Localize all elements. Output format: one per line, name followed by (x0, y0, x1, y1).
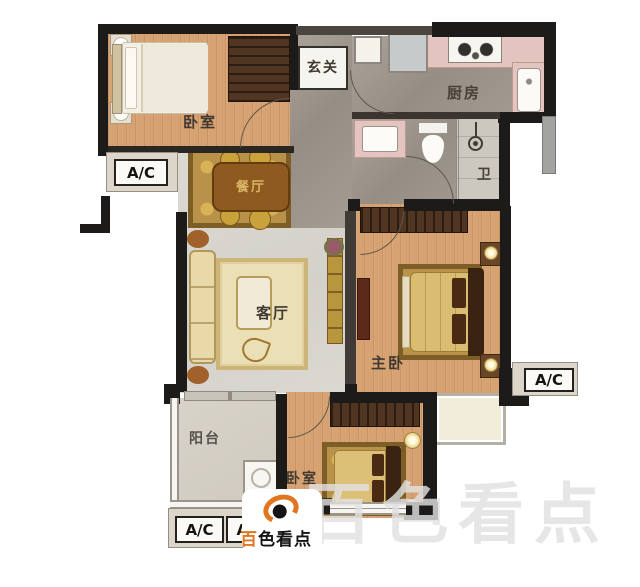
wall (290, 28, 298, 90)
wall (352, 112, 500, 119)
wall (345, 211, 356, 393)
bed-blanket (141, 44, 208, 112)
bedroom-top-label: 卧室 (183, 115, 217, 130)
wardrobe (228, 36, 290, 102)
bedside-lamp (484, 358, 498, 372)
dining-label: 餐厅 (236, 181, 266, 194)
watermark-logo-eye-icon (260, 490, 303, 528)
wall (330, 392, 424, 403)
balcony-label: 阳台 (189, 432, 221, 446)
watermark-badge-rest: 色看点 (258, 530, 312, 550)
shower-area (456, 116, 500, 204)
bath-label: 卫 (477, 168, 493, 182)
watermark-badge-accent: 百 (240, 530, 258, 550)
dining-table: 餐厅 (212, 162, 290, 212)
side-plant (187, 230, 209, 248)
bath-sink (362, 126, 398, 152)
wall (348, 199, 360, 211)
watermark-logo-pupil (271, 503, 289, 521)
wall (98, 24, 108, 156)
wall (98, 24, 298, 34)
shower-head-icon (468, 136, 483, 151)
master-dresser (357, 278, 370, 340)
duct (542, 116, 556, 174)
entry-label-box: 玄关 (298, 46, 348, 90)
wall (296, 26, 436, 35)
shower-pipe (475, 122, 477, 136)
toilet-tank (418, 122, 448, 134)
ac-label-right: A/C (524, 368, 574, 392)
watermark-badge-text: 百色看点 (240, 532, 312, 549)
ac-label-left: A/C (114, 159, 168, 186)
flower-vase (324, 238, 344, 256)
watermark-large: 百色看点 (306, 482, 610, 548)
bed-pillow (125, 47, 137, 109)
side-plant (187, 366, 209, 384)
wall (80, 224, 110, 233)
washer-drum (251, 468, 271, 488)
stove (448, 36, 502, 63)
bed-headboard (112, 44, 122, 114)
bed-bench (402, 276, 410, 348)
bed-pillow (372, 454, 384, 476)
floor-plan: 餐厅 (0, 0, 640, 587)
bay-window (434, 393, 506, 445)
bed-pillow (452, 314, 466, 344)
bedside-lamp (484, 246, 498, 260)
kitchen-sink (517, 68, 541, 112)
living-label: 客厅 (256, 306, 290, 321)
balcony-window-left (170, 398, 179, 506)
entry-cabinet-large (388, 33, 428, 73)
wall (432, 22, 556, 37)
bedside-lamp (404, 432, 421, 449)
master-headboard (468, 268, 484, 356)
entry-cabinet-small (354, 36, 382, 64)
balcony-sliding-door (184, 391, 276, 401)
ac-label-bottom-1: A/C (175, 516, 224, 543)
wall (176, 212, 187, 392)
sofa (189, 250, 216, 364)
wall (499, 112, 510, 208)
kitchen-label: 厨房 (447, 86, 481, 101)
master-label: 主卧 (371, 356, 405, 371)
bed-pillow (452, 278, 466, 308)
entry-label: 玄关 (307, 61, 339, 75)
wall (544, 32, 556, 116)
